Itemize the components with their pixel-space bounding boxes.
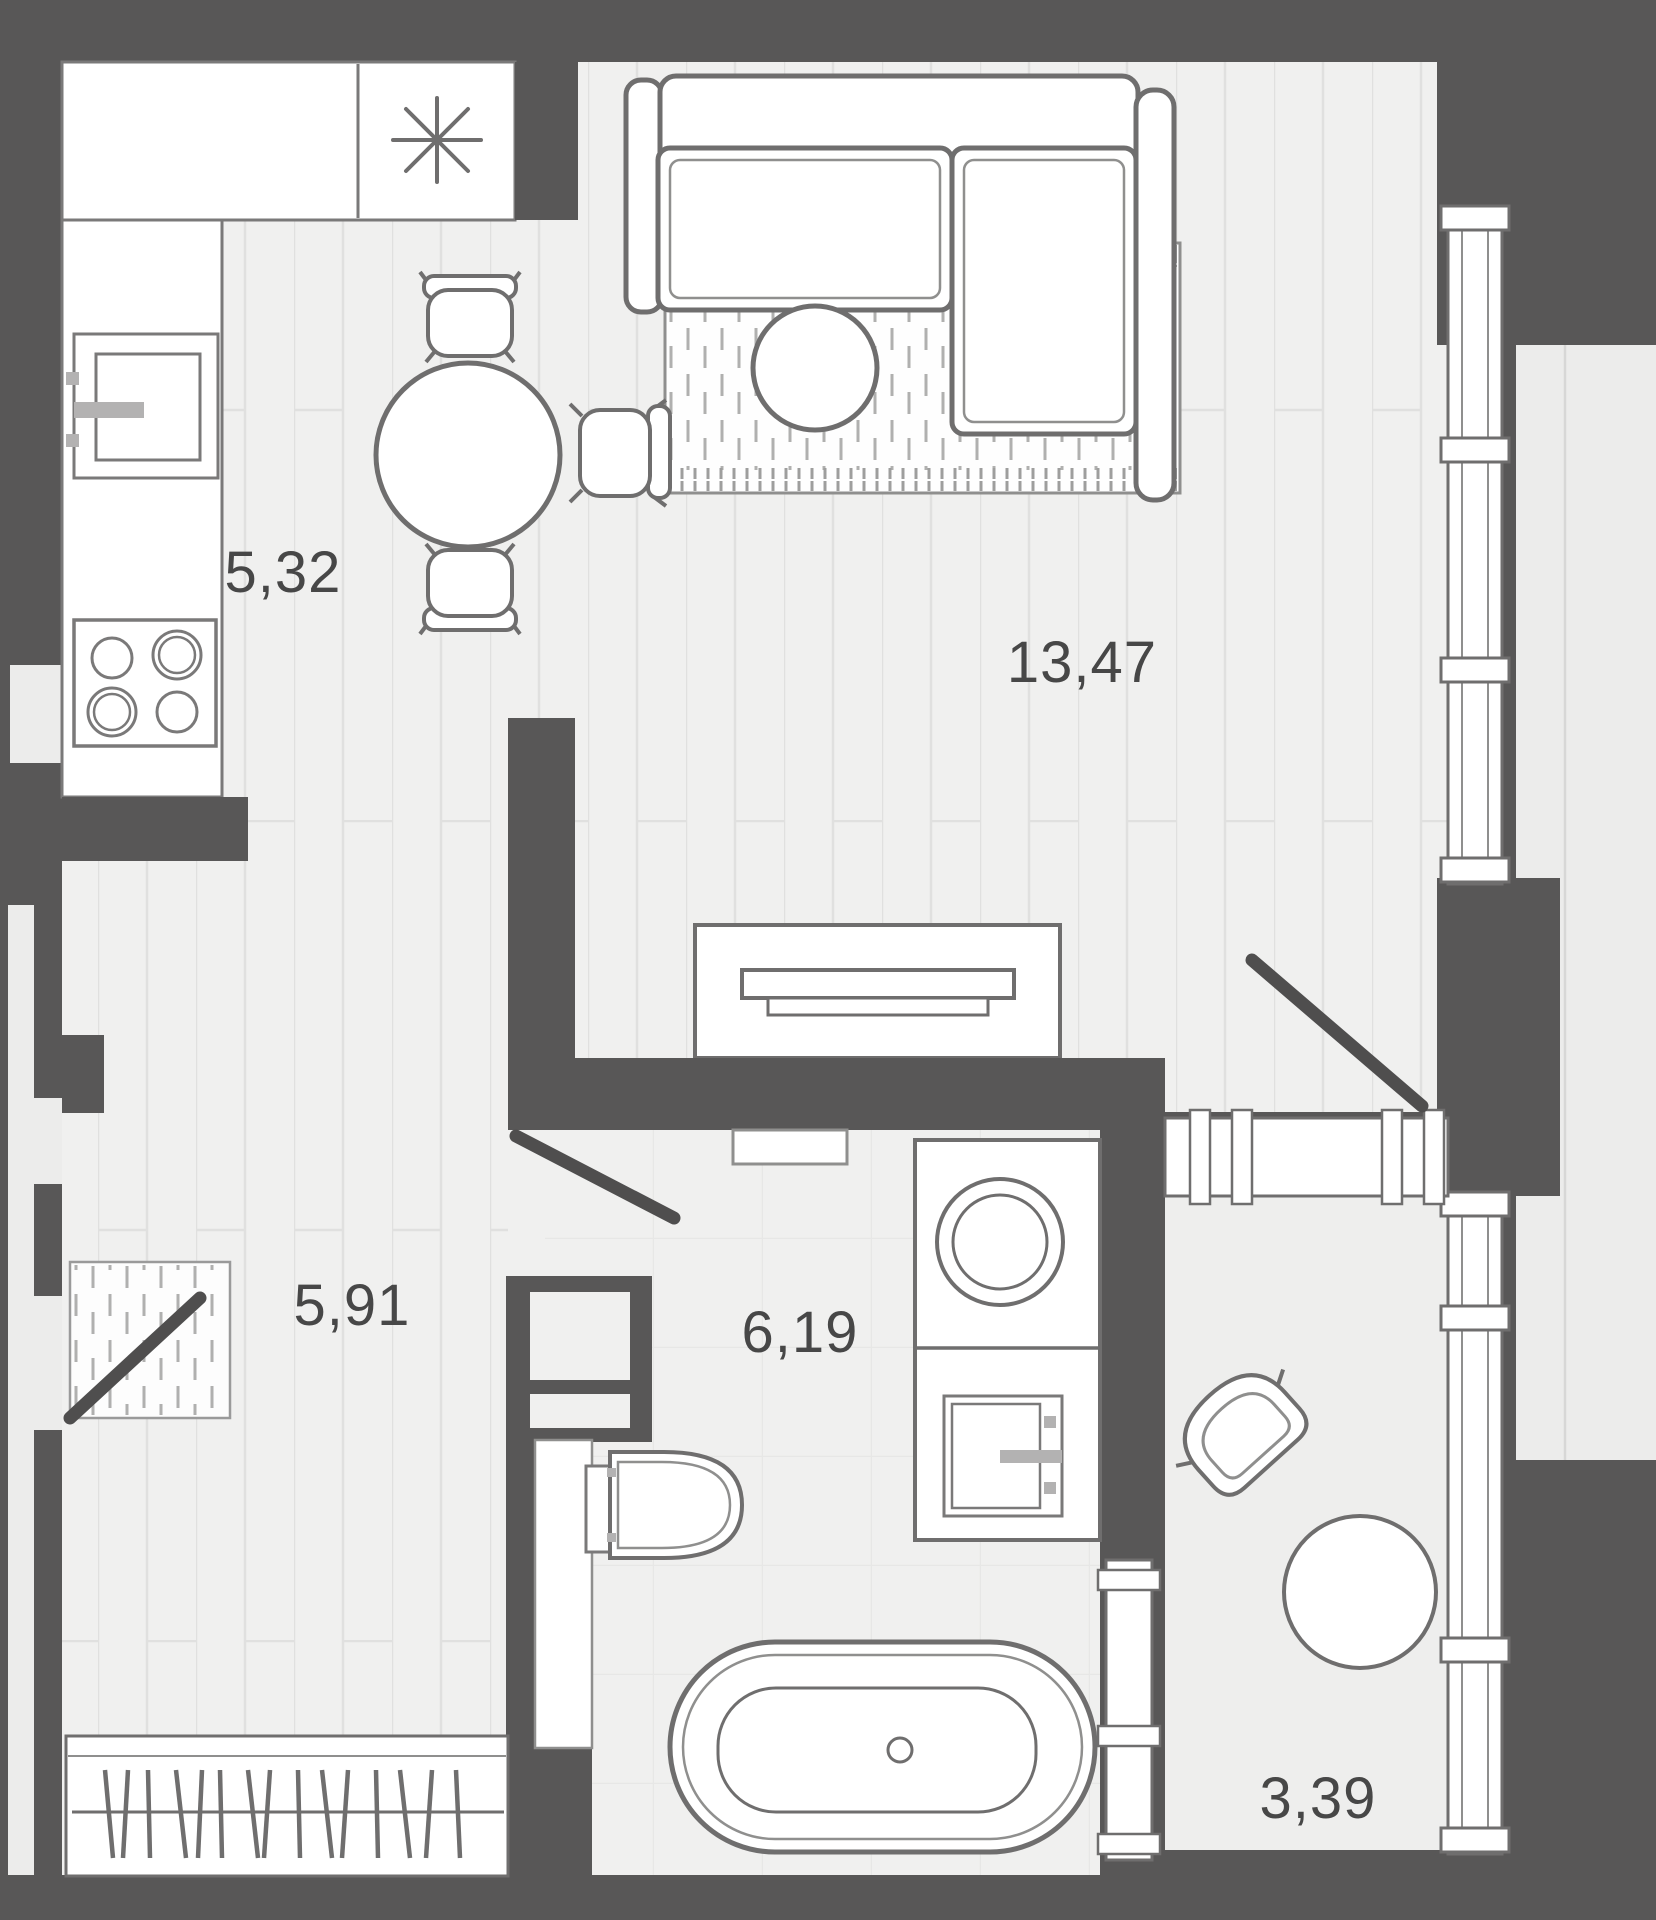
entrance-door-opening xyxy=(8,1296,62,1430)
dining-table xyxy=(376,363,560,547)
dining-chair-top xyxy=(420,272,520,362)
wall-kitchen-end xyxy=(62,797,248,861)
balcony-table xyxy=(1284,1516,1436,1668)
sofa-chaise xyxy=(952,148,1136,434)
living-room-window xyxy=(1441,206,1509,884)
sofa-seat xyxy=(658,148,952,310)
bathroom-balcony-partition-window xyxy=(1098,1560,1160,1860)
washer-sink-unit xyxy=(915,1140,1100,1540)
toilet-icon xyxy=(586,1452,742,1558)
plumbing-wall xyxy=(535,1440,592,1748)
wall-kitchen-pillar xyxy=(515,62,578,220)
kitchen-sink-icon xyxy=(66,334,218,478)
wall-niche xyxy=(733,1130,847,1164)
balcony-floor xyxy=(1165,1196,1448,1852)
wardrobe xyxy=(66,1736,508,1876)
sofa-right-armrest xyxy=(1136,90,1174,500)
wall-bathroom-top xyxy=(508,1058,1165,1130)
faucet-icon xyxy=(1000,1450,1062,1463)
area-label-living-room: 13,47 xyxy=(1007,630,1157,695)
wall-bathroom-right xyxy=(1100,1058,1165,1560)
area-label-balcony: 3,39 xyxy=(1260,1766,1377,1831)
area-label-bathroom: 6,19 xyxy=(742,1300,859,1365)
balcony-door-assembly xyxy=(1165,1110,1448,1204)
snowflake-icon xyxy=(393,98,481,182)
shaft-compartments xyxy=(530,1292,630,1428)
tv-icon xyxy=(742,970,1014,998)
dining-chair-bottom xyxy=(420,544,520,634)
wall-window-pier xyxy=(1437,878,1560,1196)
stove-icon xyxy=(74,620,216,746)
floor-plan-canvas: 5,32 13,47 5,91 6,19 3,39 xyxy=(0,0,1656,1920)
balcony-window xyxy=(1441,1192,1509,1854)
tv-stand xyxy=(695,925,1060,1058)
dining-chair-right xyxy=(570,400,670,506)
bathroom-sink-icon xyxy=(944,1396,1062,1516)
floor-plan: 5,32 13,47 5,91 6,19 3,39 xyxy=(0,0,1656,1920)
area-label-kitchen-dining: 5,32 xyxy=(225,540,342,605)
wall-hall-stub xyxy=(508,718,575,1060)
faucet-icon xyxy=(74,402,144,418)
coffee-table xyxy=(753,306,877,430)
area-label-hallway: 5,91 xyxy=(294,1273,411,1338)
bathtub-icon xyxy=(670,1642,1095,1852)
